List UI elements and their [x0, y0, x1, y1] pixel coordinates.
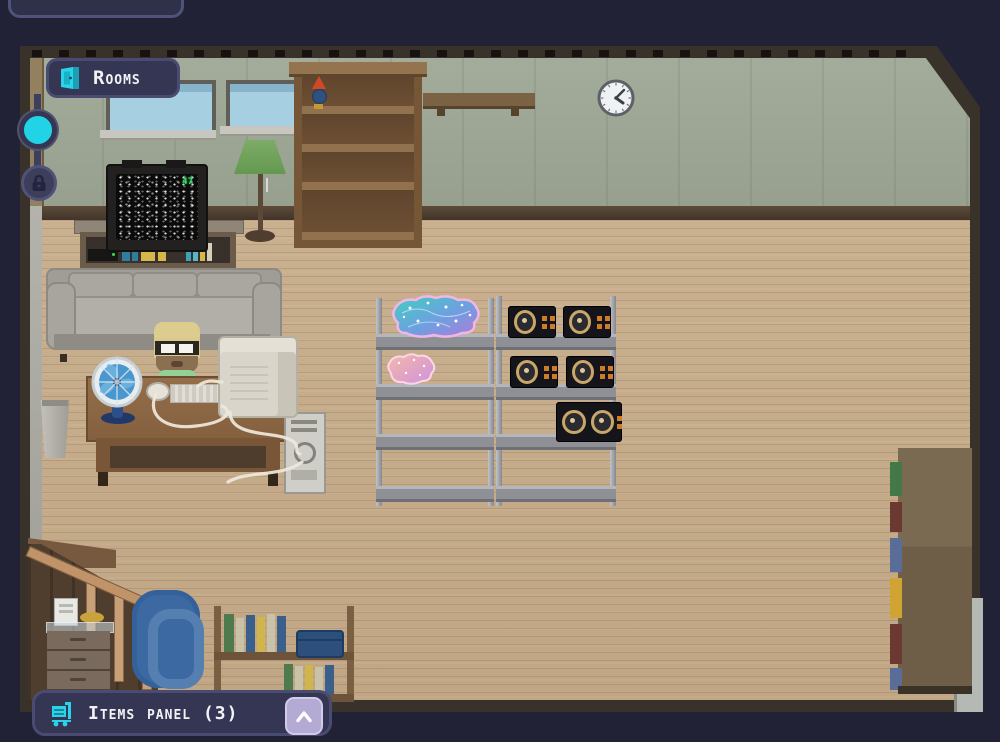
- top-panel-partial: [8, 0, 184, 18]
- speaker[interactable]: [510, 356, 558, 388]
- lock-icon: [30, 173, 48, 193]
- glasses-lens: [179, 344, 193, 353]
- lamp-pole: [258, 174, 263, 232]
- brain-icon: [384, 351, 438, 387]
- shelf-bracket: [437, 106, 445, 116]
- party-trophy[interactable]: [312, 76, 327, 109]
- shelf-rail: [496, 296, 502, 506]
- rooms-button-label: Rooms: [93, 67, 141, 89]
- book-spine: [890, 502, 902, 532]
- game-stage: 47: [0, 0, 1000, 742]
- pc-fan-grill: [294, 442, 316, 464]
- book-spine: [257, 617, 265, 652]
- desk-recess: [110, 446, 266, 468]
- wardrobe-shadow: [898, 686, 972, 694]
- window-sill: [100, 130, 216, 140]
- collapse-items-panel-button[interactable]: [285, 697, 323, 735]
- book-spine: [267, 614, 275, 652]
- shelf-rail: [376, 298, 382, 506]
- shelf-board: [496, 486, 616, 502]
- party-hat: [312, 76, 326, 89]
- shelf-board: [376, 486, 494, 502]
- book-spine: [890, 538, 902, 572]
- bookshelf-opening: [302, 76, 414, 114]
- speaker-cone: [591, 410, 615, 434]
- current-room-indicator[interactable]: [19, 111, 57, 149]
- book-spine: [277, 616, 286, 652]
- nightstand-body: [47, 631, 110, 693]
- blue-rug[interactable]: [132, 590, 200, 688]
- desk-fan[interactable]: [88, 356, 148, 426]
- trophy-base: [314, 104, 323, 109]
- glowing-brain-large[interactable]: [388, 293, 484, 345]
- drawer: [47, 631, 110, 651]
- shelf-board: [376, 434, 494, 450]
- book-spine: [236, 618, 244, 652]
- cart-icon: [49, 700, 76, 727]
- speaker-cone: [514, 310, 536, 334]
- speaker-buttons: [600, 366, 613, 379]
- speaker-buttons: [542, 316, 555, 329]
- book-chest[interactable]: [296, 630, 344, 658]
- tv-handle: [166, 160, 186, 168]
- crt-monitor[interactable]: [218, 336, 298, 418]
- bookshelf-opening: [302, 114, 414, 152]
- speaker[interactable]: [508, 306, 556, 338]
- side-wardrobe[interactable]: [898, 448, 972, 694]
- glasses-icon: [155, 341, 199, 355]
- tall-bookshelf[interactable]: [294, 64, 422, 248]
- clock-icon: [596, 78, 636, 118]
- trophy-ball: [312, 89, 327, 104]
- tv-channel-number: 47: [182, 177, 193, 187]
- ceiling-trim: [32, 50, 915, 57]
- book-spine: [325, 665, 334, 694]
- bookshelf-opening: [302, 190, 414, 240]
- book-spine: [890, 462, 902, 496]
- character-face: [154, 338, 200, 358]
- monitor-vents: [230, 360, 268, 400]
- psu-vent: [291, 470, 317, 480]
- fan-icon: [88, 356, 148, 426]
- drive-slot: [291, 428, 317, 432]
- speaker-cone: [562, 410, 586, 434]
- tv-static-screen: 47: [116, 174, 198, 240]
- glowing-brain-small[interactable]: [384, 351, 438, 391]
- lamp-base: [245, 230, 275, 242]
- speaker-buttons: [597, 316, 610, 329]
- glasses-lens: [161, 344, 175, 353]
- low-bookshelf[interactable]: [214, 606, 354, 702]
- wall-shelf[interactable]: [423, 93, 535, 109]
- desk-leg: [98, 472, 108, 486]
- shelf-bracket: [511, 106, 519, 116]
- couch-cushion: [68, 272, 134, 298]
- door-icon: [59, 65, 83, 91]
- bookshelf-crown: [289, 62, 427, 77]
- drawer: [47, 651, 110, 671]
- book-spine: [246, 615, 255, 652]
- trash-rim: [42, 400, 68, 406]
- items-panel-bar[interactable]: Items panel (3): [32, 690, 332, 736]
- couch-cushion: [132, 272, 198, 298]
- speaker-cone: [569, 310, 591, 334]
- desk-front: [96, 438, 280, 472]
- speaker-buttons: [617, 416, 621, 429]
- wall-clock[interactable]: [596, 78, 636, 118]
- book-spine: [224, 614, 234, 652]
- book-spine: [890, 624, 902, 664]
- speaker-buttons: [544, 366, 557, 379]
- bookshelf-opening: [302, 152, 414, 190]
- shelf-rail: [488, 298, 494, 506]
- nightstand[interactable]: [46, 598, 114, 696]
- speaker[interactable]: [566, 356, 614, 388]
- crt-tv[interactable]: 47: [106, 164, 208, 252]
- brain-icon: [388, 293, 484, 341]
- pc-tower[interactable]: [284, 412, 326, 494]
- chevron-up-icon: [292, 706, 316, 726]
- tv-handle: [122, 160, 142, 168]
- floor-lamp[interactable]: [234, 140, 286, 250]
- speaker[interactable]: [563, 306, 611, 338]
- lamp-pull-chain: [266, 178, 268, 192]
- drawer: [47, 671, 110, 691]
- locked-room-button[interactable]: [21, 165, 57, 201]
- speaker-cone: [516, 360, 538, 384]
- lamp-shade: [234, 140, 286, 174]
- couch-foot: [60, 354, 67, 362]
- rug-pattern: [148, 609, 204, 689]
- desk-leg: [268, 472, 278, 486]
- speaker-cone: [572, 360, 594, 384]
- items-panel-label: Items panel (3): [88, 703, 238, 724]
- speaker-double[interactable]: [556, 402, 622, 442]
- computer-mouse[interactable]: [146, 382, 170, 401]
- rooms-button[interactable]: Rooms: [46, 58, 180, 98]
- character-mouth: [171, 361, 183, 367]
- drive-slot: [291, 420, 317, 424]
- book-spine: [890, 578, 902, 618]
- baluster: [114, 588, 124, 682]
